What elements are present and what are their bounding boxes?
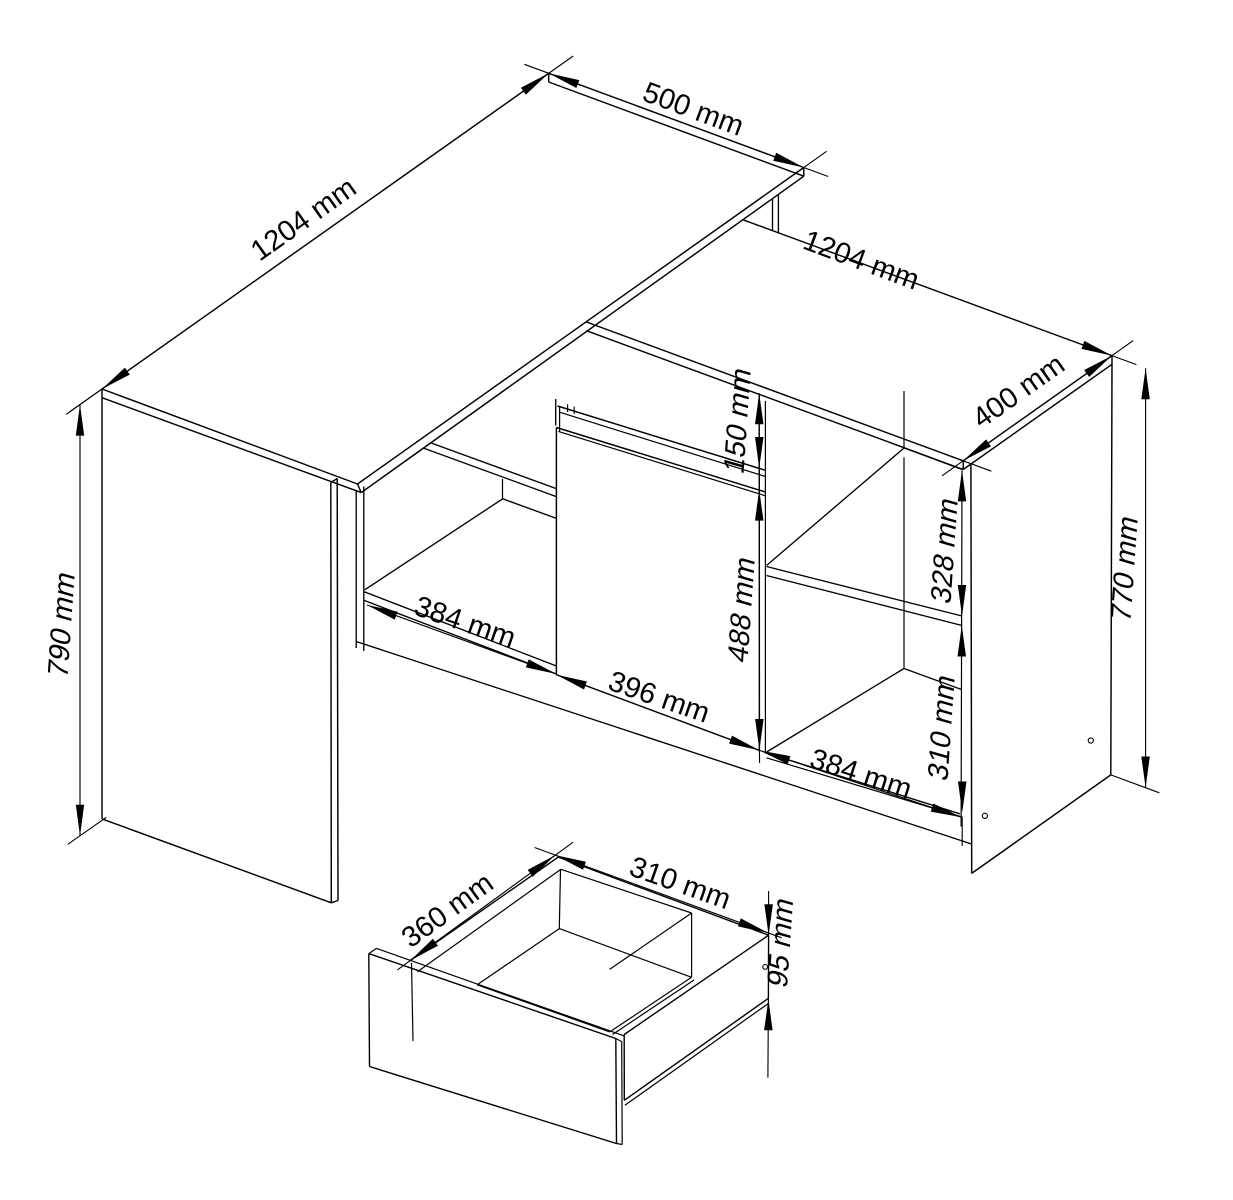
svg-text:95 mm: 95 mm (762, 894, 800, 992)
